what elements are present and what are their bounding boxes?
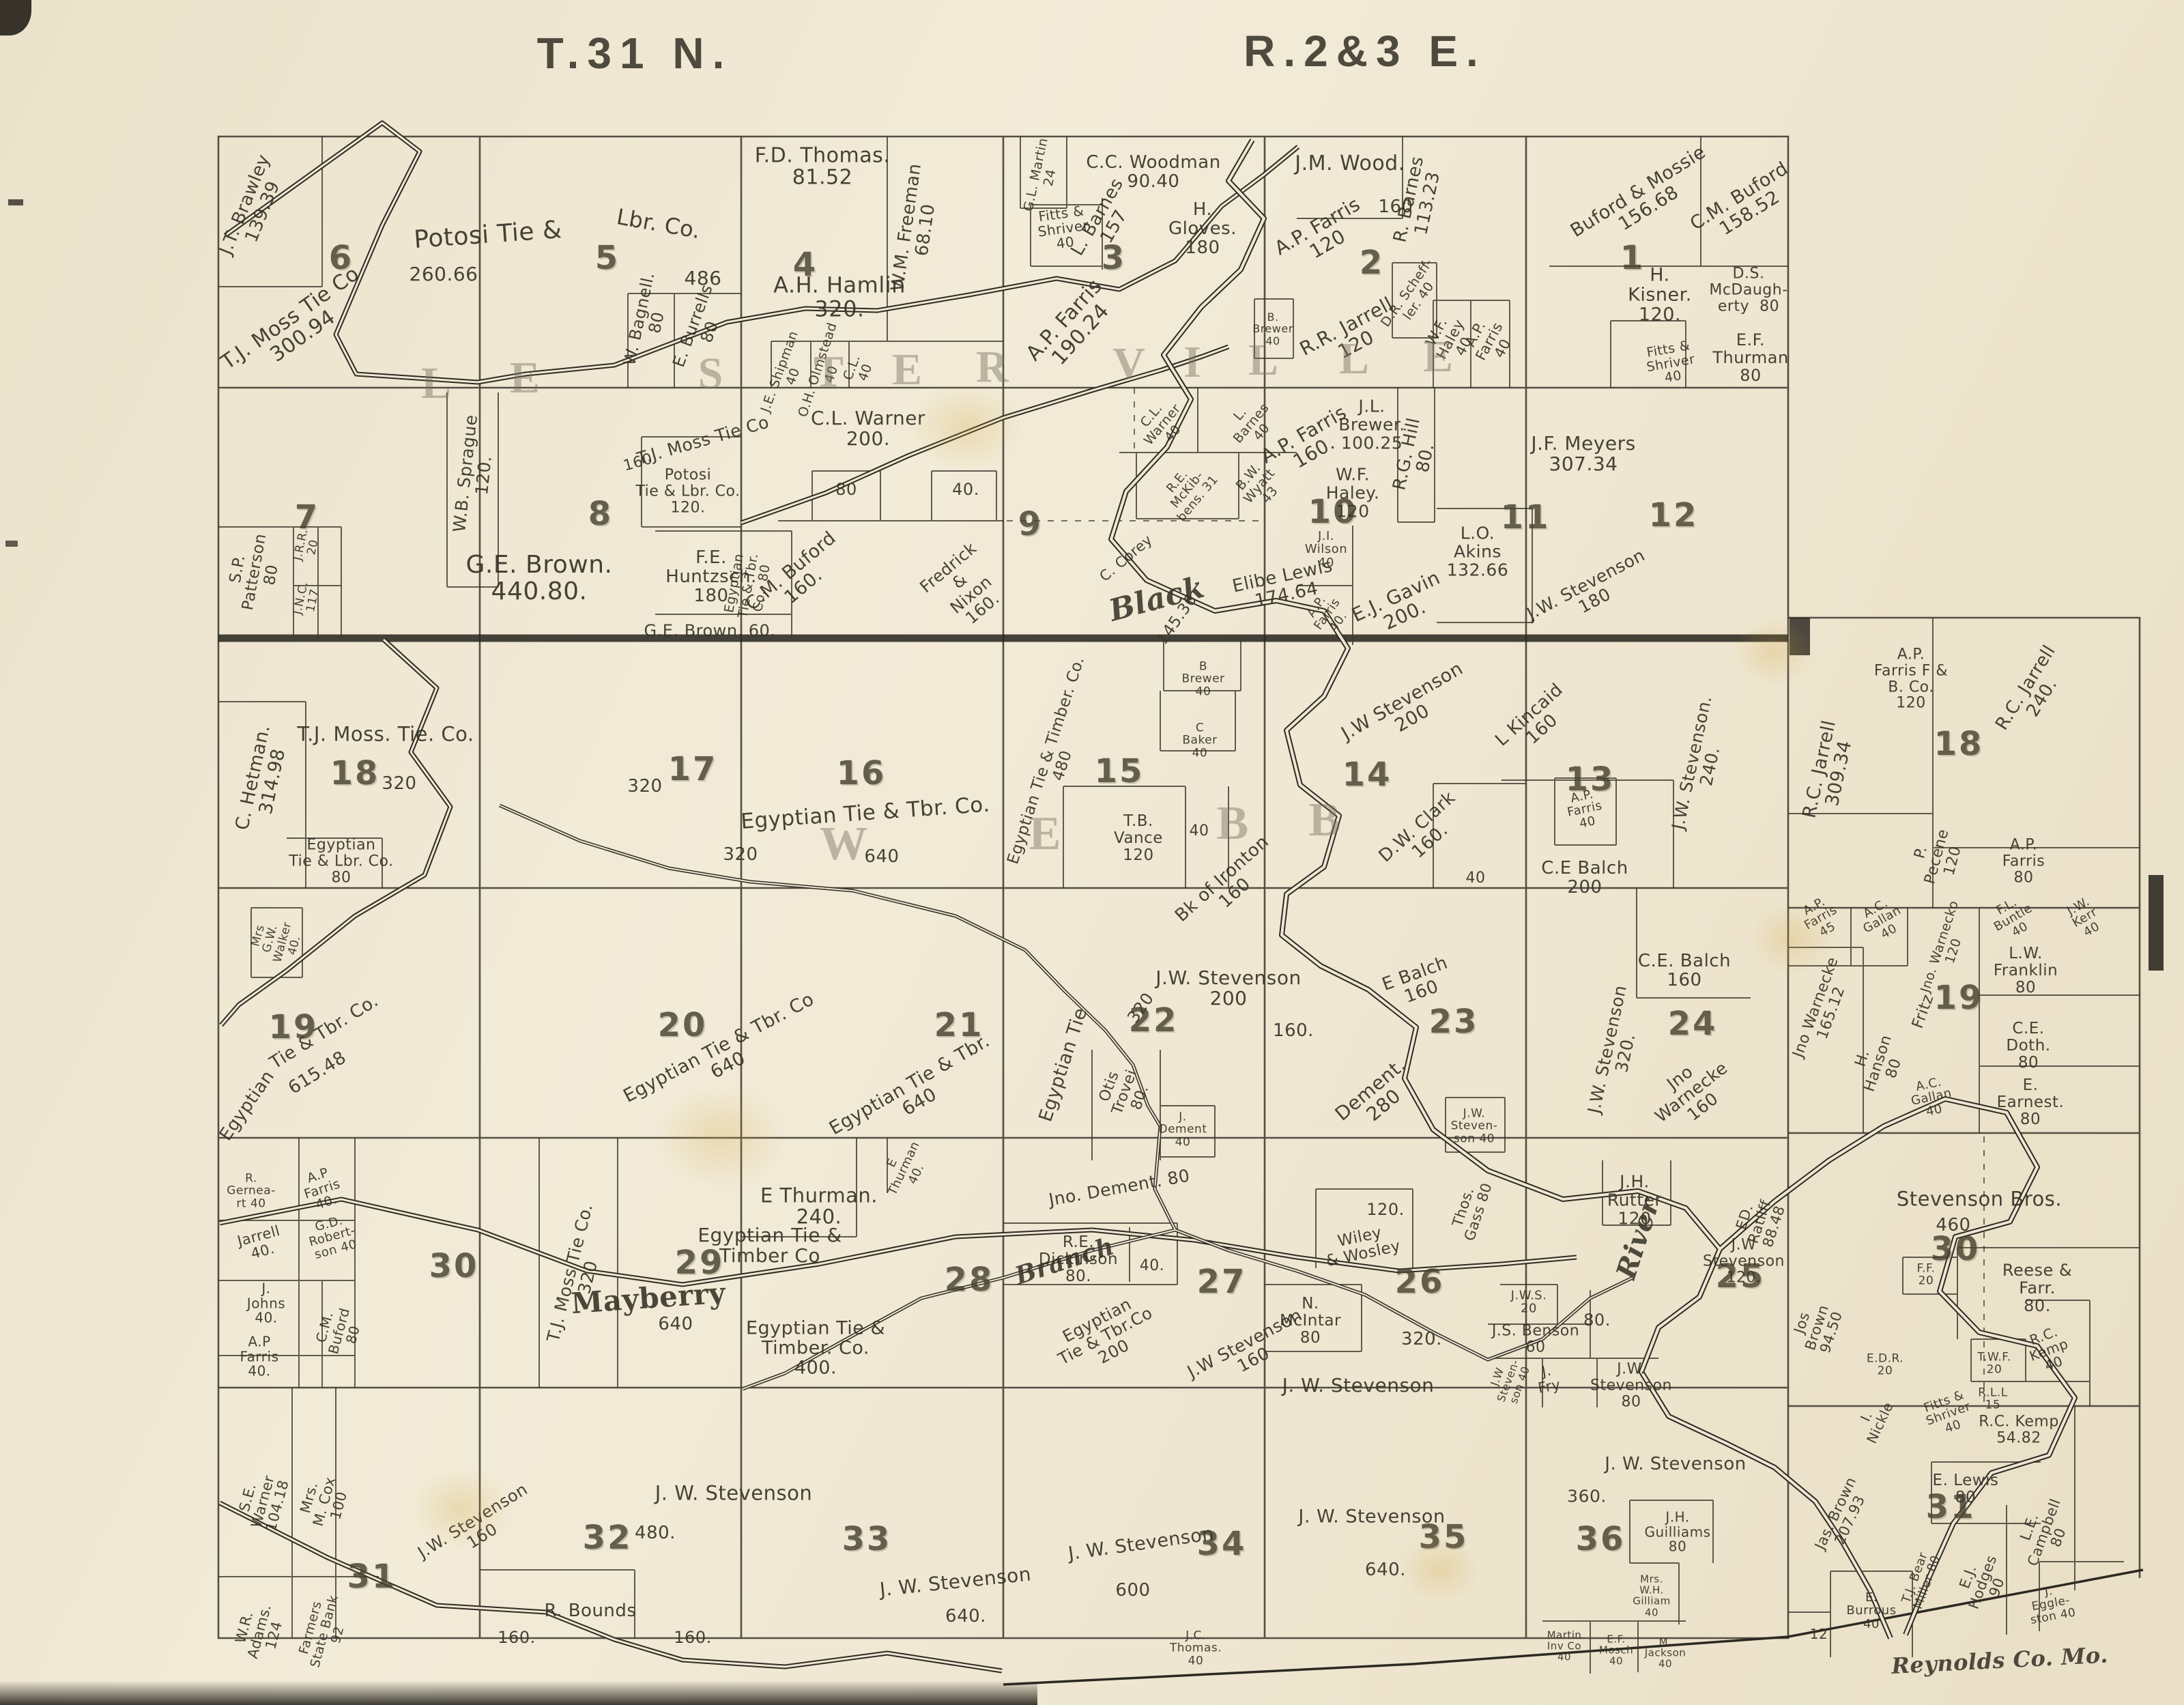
parcel-label: B Brewer 40 — [1181, 660, 1224, 698]
section-number: 18 — [1934, 725, 1984, 763]
parcel-label: J.S. Benson 60 — [1492, 1323, 1579, 1356]
parcel-label: N. McIntar 80 — [1280, 1295, 1341, 1346]
parcel-label: J.C. Thomas. 40 — [1170, 1629, 1222, 1667]
parcel-label: A.P. Farris F & B. Co. 120 — [1874, 647, 1948, 712]
parcel-label: 120. — [1366, 1201, 1404, 1219]
section-number: 23 — [1429, 1003, 1479, 1041]
section-number: 8 — [588, 495, 613, 533]
section-number: 32 — [583, 1519, 633, 1557]
parcel-label: 320 — [382, 774, 416, 793]
place-name-letter: E — [1029, 807, 1063, 861]
parcel-label: Egyptian Tie & Timber Co — [698, 1225, 842, 1266]
parcel-label: 160. — [498, 1629, 535, 1647]
parcel-label: J.W. Stevenson 200 — [1155, 968, 1301, 1009]
parcel-label: W.F. Haley. 120 — [1326, 465, 1380, 521]
parcel-label: 360. — [1567, 1487, 1607, 1506]
place-name-letter: B — [1217, 797, 1250, 851]
parcel-label: E.F. Thurman 80 — [1712, 332, 1788, 385]
section-number: 14 — [1342, 756, 1392, 794]
parcel-label: J. Dement 40 — [1158, 1111, 1207, 1148]
paper-stain — [1747, 901, 1836, 976]
parcel-label: J. Johns 40. — [247, 1282, 285, 1326]
paper-stain — [409, 1467, 512, 1549]
parcel-label: A.C. Gallan 40 — [1907, 1074, 1955, 1121]
scan-edge-bar — [2149, 875, 2164, 971]
parcel-label: J.L. Brewer. 100.25 — [1338, 397, 1405, 453]
parcel-label: J. W. Stevenson — [1605, 1455, 1746, 1474]
parcel-label: Stevenson Bros. — [1897, 1188, 2062, 1209]
section-number: 5 — [595, 239, 620, 277]
parcel-label: C.E Balch 200 — [1541, 859, 1628, 897]
parcel-label: E. Earnest. 80 — [1997, 1077, 2065, 1128]
place-name-letter: S — [698, 348, 725, 400]
parcel-label: 160. — [1273, 1021, 1314, 1040]
place-name-letter: L — [421, 358, 452, 410]
parcel-label: T.W.F. 20 — [1977, 1351, 2011, 1377]
place-name-letter: W — [820, 817, 869, 872]
parcel-label: J.W.S. 20 — [1511, 1289, 1547, 1316]
scan-bottom-band — [0, 1680, 1037, 1705]
parcel-label: R.C. Kemp 54.82 — [1979, 1414, 2059, 1446]
place-name-letter: E — [1423, 331, 1454, 383]
place-name-letter: L — [1339, 333, 1370, 385]
parcel-label: 80. — [1583, 1312, 1611, 1330]
section-number: 30 — [429, 1247, 479, 1285]
parcel-label: 40. — [952, 481, 979, 499]
parcel-label: 160. — [674, 1629, 711, 1647]
parcel-label: 640. — [945, 1607, 986, 1626]
section-number: 16 — [837, 754, 887, 792]
parcel-label: 480. — [635, 1523, 676, 1543]
parcel-label: 320. — [1401, 1330, 1442, 1349]
place-name-letter: T — [814, 346, 845, 398]
scan-edge-mark — [8, 199, 23, 205]
parcel-label: E. Lewis 80 — [1933, 1472, 1999, 1506]
parcel-label: Fitts & Shriver 40 — [1643, 338, 1698, 388]
parcel-label: D.S. McDaugh- erty 80 — [1709, 266, 1787, 314]
parcel-label: A.P Farris 40. — [240, 1335, 279, 1379]
paper-stain — [1399, 1536, 1481, 1604]
parcel-label: J. W. Stevenson — [655, 1482, 813, 1504]
parcel-label: 640 — [658, 1315, 693, 1334]
parcel-label: 640 — [864, 847, 899, 866]
range-title: R.2&3 E. — [1244, 26, 1486, 76]
parcel-label: Martin Inv Co 40 — [1547, 1630, 1582, 1663]
township-title: T.31 N. — [537, 28, 733, 78]
parcel-label: R.L.L 15 — [1978, 1387, 2007, 1412]
parcel-label: J. W. Stevenson — [1282, 1375, 1435, 1396]
parcel-label: G.E. Brown. 60. — [644, 622, 776, 640]
parcel-label: 600 — [1115, 1581, 1150, 1600]
section-number: 17 — [668, 750, 718, 788]
parcel-label: J.M. Wood. — [1295, 153, 1405, 175]
parcel-label: J.I. Wilson 40 — [1305, 530, 1347, 569]
place-name-letter: E — [892, 344, 923, 396]
parcel-label: M. Jackson 40 — [1645, 1637, 1686, 1670]
section-number: 24 — [1668, 1005, 1718, 1043]
section-number: 33 — [842, 1520, 892, 1558]
parcel-label: E Thurman. 240. — [760, 1186, 878, 1229]
parcel-label: T.B. Vance 120 — [1114, 813, 1163, 863]
section-number: 9 — [1018, 505, 1043, 543]
parcel-label: R. Bounds — [545, 1601, 637, 1620]
parcel-label: Egyptian Tie & Lbr. Co. 80 — [289, 837, 393, 885]
paper-stain — [655, 1085, 785, 1188]
parcel-label: E.F. Mosch 40 — [1599, 1634, 1633, 1667]
parcel-label: A.P. Farris 80 — [2002, 837, 2045, 885]
parcel-label: E. Burrous 40 — [1846, 1591, 1896, 1631]
paper-stain — [1734, 618, 1815, 686]
section-number: 26 — [1395, 1263, 1445, 1301]
parcel-label: 320 — [723, 845, 758, 864]
parcel-label: 80 — [835, 481, 857, 499]
parcel-label: 40 — [1190, 823, 1209, 840]
parcel-label: L.O. Akins 132.66 — [1447, 524, 1508, 579]
parcel-label: A.H. Hamlin 320. — [773, 273, 906, 320]
section-number: 30 — [1931, 1230, 1981, 1268]
parcel-label: Mrs. W.H. Gilliam 40 — [1633, 1574, 1671, 1618]
parcel-label: 260.66 — [409, 264, 478, 285]
place-name-letter: V — [1112, 338, 1147, 390]
scan-edge-mark — [5, 541, 18, 547]
parcel-label: 40. — [1140, 1258, 1165, 1274]
parcel-label: Potosi Tie & Lbr. Co. 120. — [635, 467, 740, 515]
parcel-label: G.E. Brown. 440.80. — [466, 552, 613, 605]
parcel-label: F.D. Thomas. 81.52 — [755, 145, 891, 190]
parcel-label: E.D.R. 20 — [1867, 1353, 1903, 1378]
section-number: 19 — [1934, 979, 1984, 1017]
section-number: 12 — [1649, 496, 1699, 534]
parcel-label: J.F. Meyers 307.34 — [1531, 433, 1635, 474]
place-name-letter: L — [1248, 334, 1280, 386]
parcel-label: T.J. Moss. Tie. Co. — [297, 723, 474, 745]
parcel-label: C.E. Doth. 80 — [2006, 1020, 2050, 1071]
parcel-label: 12 — [1810, 1627, 1828, 1642]
place-name-letter: B — [1309, 793, 1342, 848]
place-name-letter: I — [1183, 336, 1203, 388]
parcel-label: J. Eggle- ston 40 — [2025, 1581, 2077, 1627]
parcel-label: C.E. Balch 160 — [1638, 951, 1731, 990]
parcel-label: J.W. Steven- son 40 — [1451, 1107, 1498, 1145]
section-number: 31 — [347, 1558, 397, 1596]
parcel-label: 320 — [627, 777, 662, 796]
parcel-label: L.W. Franklin 80 — [1994, 945, 2058, 996]
section-number: 2 — [1360, 244, 1384, 282]
plat-map-page: T.31 N. R.2&3 E. Reynolds Co. Mo. 6J.T. … — [0, 0, 2184, 1705]
parcel-label: 40 — [1466, 870, 1486, 887]
parcel-label: C Baker 40 — [1182, 721, 1217, 759]
parcel-label: Egyptian Tie & Timber. Co. 400. — [746, 1318, 885, 1377]
parcel-label: J.W. Stevenson 80 — [1590, 1361, 1672, 1409]
parcel-label: J.H. Guilliams 80 — [1644, 1510, 1710, 1555]
parcel-label: Reese & Farr. 80. — [2002, 1262, 2072, 1315]
parcel-label: F.F. 20 — [1917, 1263, 1936, 1288]
parcel-label: H. Gloves. 180 — [1168, 200, 1237, 257]
section-number: 28 — [945, 1261, 994, 1299]
parcel-label: H. Kisner. 120. — [1628, 265, 1692, 324]
section-number: 18 — [330, 754, 380, 792]
section-number: 27 — [1197, 1263, 1247, 1301]
section-number: 15 — [1095, 752, 1145, 790]
parcel-label: R. Gernea- rt 40 — [227, 1172, 276, 1209]
place-name-letter: E — [510, 352, 541, 404]
parcel-label: J. W. Stevenson — [1298, 1506, 1445, 1526]
section-number: 20 — [658, 1006, 708, 1044]
paper-stain — [908, 382, 1024, 471]
section-number: 36 — [1576, 1520, 1626, 1558]
parcel-label: 460 — [1936, 1216, 1970, 1235]
